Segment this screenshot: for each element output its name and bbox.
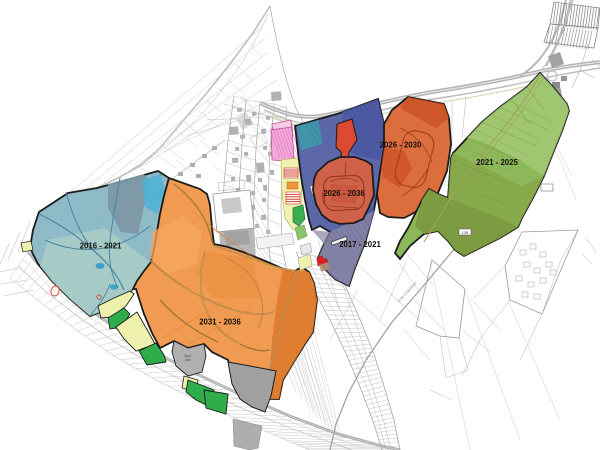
- svg-text:2021 - 2025: 2021 - 2025: [476, 158, 518, 167]
- svg-text:2017 - 2021: 2017 - 2021: [339, 240, 381, 249]
- svg-text:2026 - 2036: 2026 - 2036: [323, 189, 365, 198]
- svg-text:2016 - 2021: 2016 - 2021: [80, 242, 122, 251]
- svg-text:2031 - 2036: 2031 - 2036: [199, 318, 241, 327]
- svg-text:135: 135: [462, 230, 469, 235]
- svg-text:2026 - 2030: 2026 - 2030: [380, 141, 422, 150]
- svg-text:park: park: [185, 358, 192, 362]
